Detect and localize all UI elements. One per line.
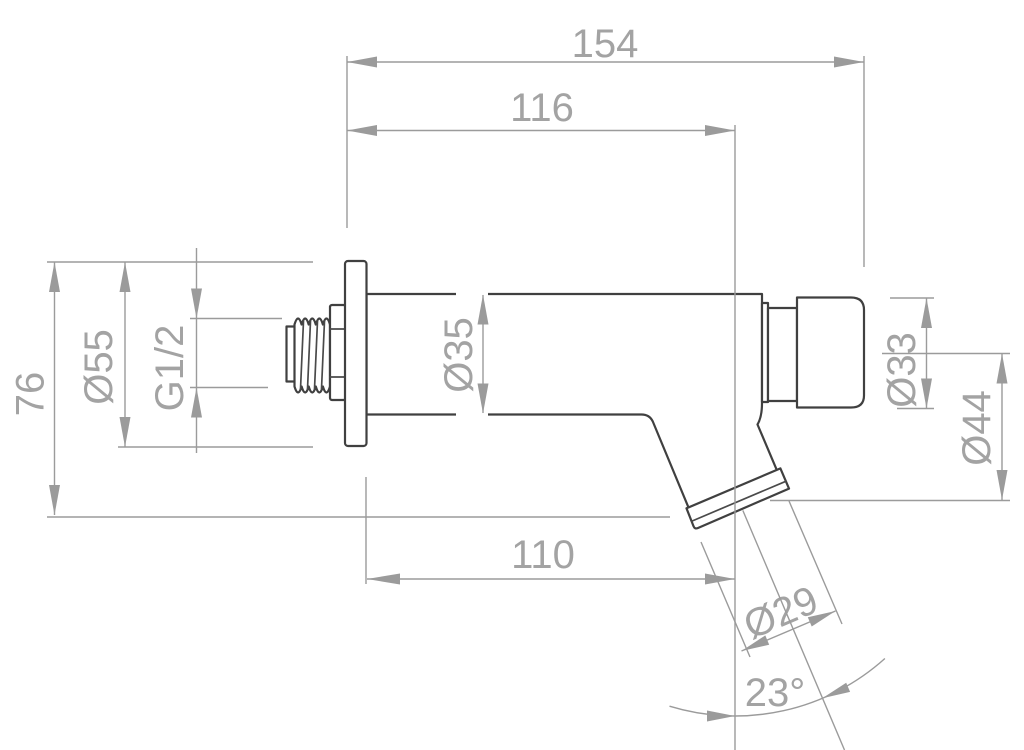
arrow-up-icon [120, 262, 131, 292]
hex-nut [330, 305, 346, 400]
arrow-left-icon [367, 574, 400, 585]
arrow-down-icon [191, 289, 202, 319]
dim-wall-to-button-label: 116 [510, 86, 574, 130]
wall-flange [345, 261, 367, 446]
faucet-body [367, 294, 778, 509]
arrow-down-icon [49, 485, 60, 515]
dim-spout-diameter-label: Ø29 [738, 578, 825, 648]
arrow-right-icon [834, 57, 864, 68]
arrow-left-icon [347, 57, 377, 68]
drawing-canvas: 154 116 76 Ø55 G1/2 [0, 0, 1024, 750]
dim-overall-height-label: 76 [9, 372, 53, 417]
arrow-right-icon [705, 125, 735, 136]
dim-spout-angle-label: 23° [745, 671, 806, 715]
dim-overall-length-label: 154 [572, 22, 639, 66]
arrow-down-icon [120, 417, 131, 447]
push-button [797, 298, 864, 408]
arrow-up-icon [921, 298, 932, 328]
arrow-up-icon [49, 262, 60, 292]
dim-flange-diameter-label: Ø55 [77, 329, 121, 405]
dim-outlet-face-diameter-label: Ø44 [955, 390, 999, 466]
arrow-right-icon [705, 574, 735, 585]
arrow-left-icon [347, 125, 377, 136]
arrow-down-icon [997, 470, 1008, 500]
arrow-up-icon [997, 354, 1008, 384]
dim-inlet-thread: G1/2 [148, 248, 282, 453]
arrow-up-right-icon [822, 683, 850, 699]
dim-wall-to-outlet-label: 110 [511, 533, 575, 577]
faucet-outline [287, 261, 865, 528]
neck-collar [768, 308, 797, 401]
dim-overall-length: 154 [347, 22, 864, 267]
dim-inlet-thread-label: G1/2 [148, 325, 192, 412]
technical-drawing: 154 116 76 Ø55 G1/2 [0, 0, 1024, 750]
dim-button-diameter-label: Ø33 [880, 332, 924, 408]
arrow-up-icon [191, 388, 202, 418]
arrow-right-icon [707, 711, 735, 722]
dim-wall-to-outlet: 110 [366, 477, 735, 585]
dim-body-diameter-label: Ø35 [437, 317, 481, 393]
